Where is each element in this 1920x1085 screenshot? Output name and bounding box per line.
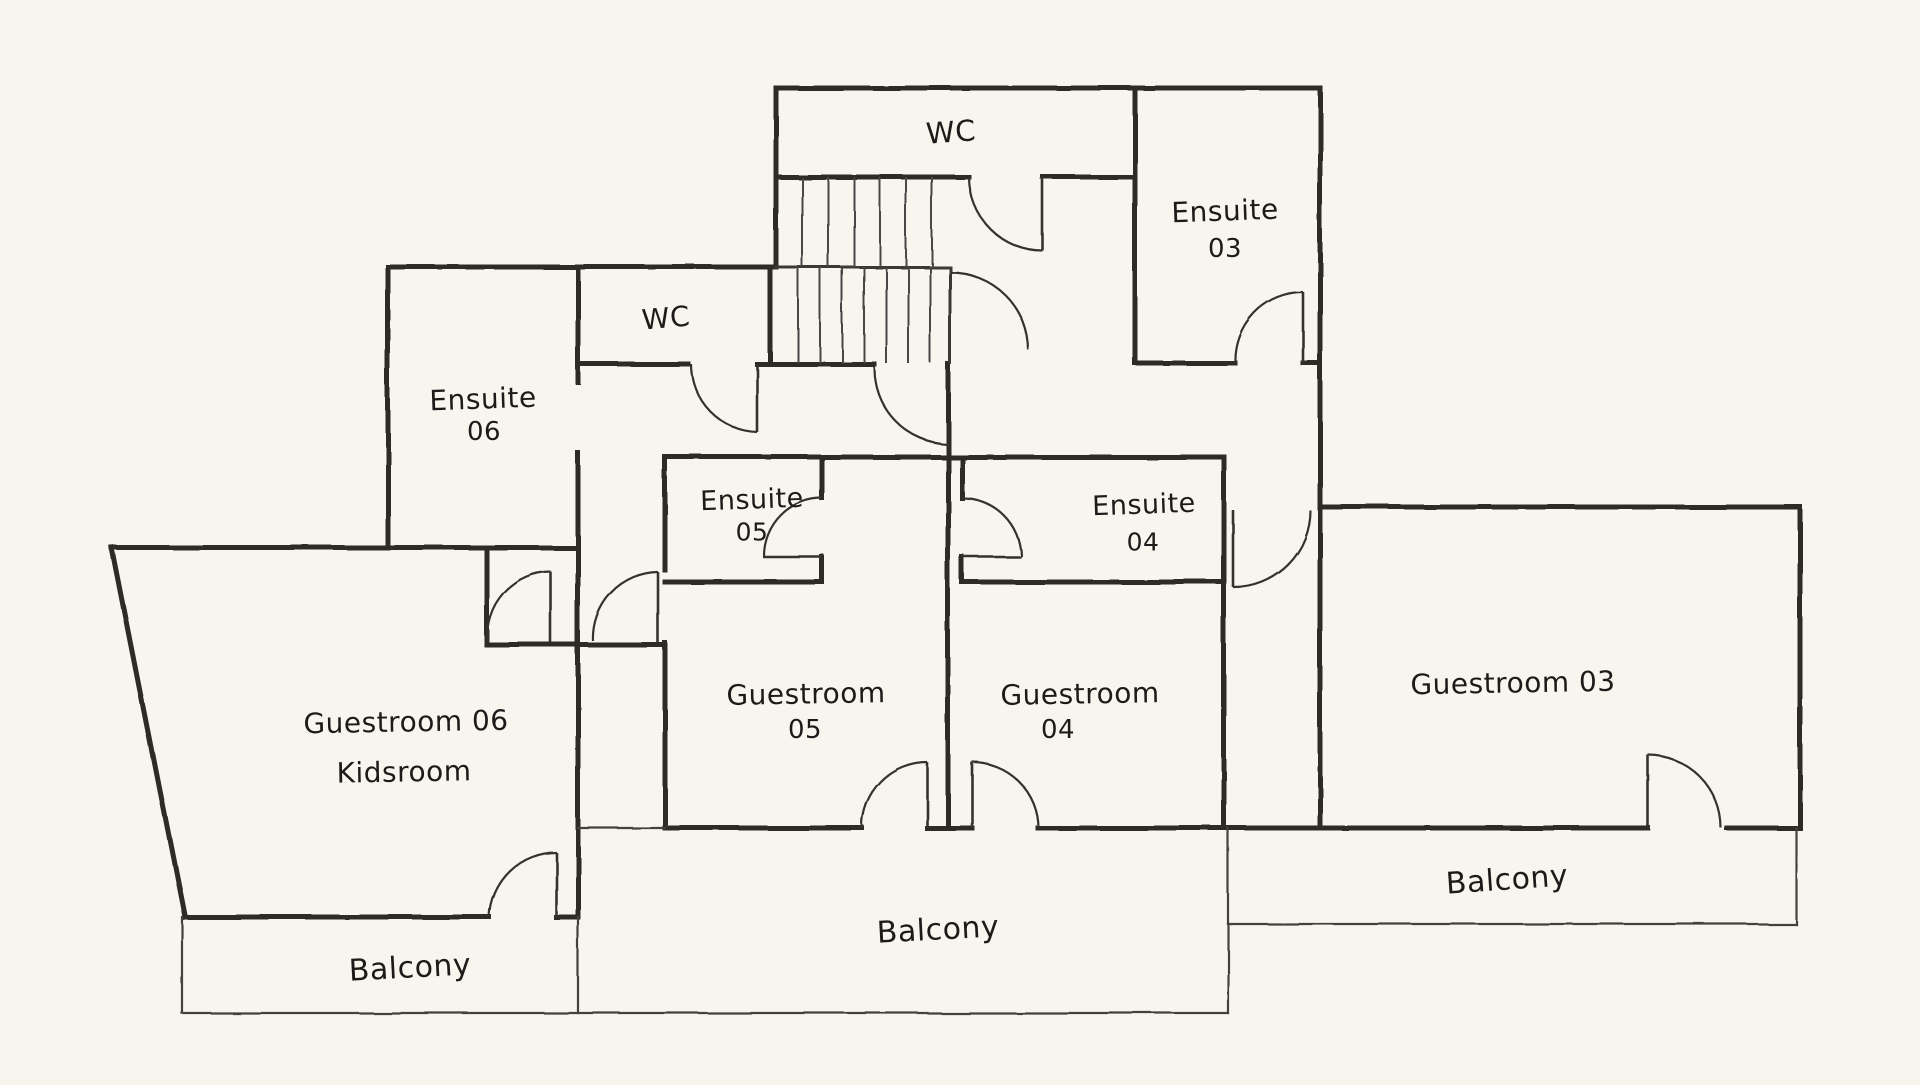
label-guestroom-06-line2: Kidsroom [336, 754, 471, 789]
label-ensuite-04-line2: 04 [1127, 528, 1160, 557]
label-ensuite-06-line1: Ensuite [429, 381, 537, 418]
door-arcs-layer [488, 177, 1721, 917]
door-swing-arc [593, 572, 658, 641]
label-balcony-center: Balcony [876, 909, 1000, 950]
door-swing-arc [874, 366, 948, 444]
door-swing-arc [489, 852, 556, 917]
stairs-layer [798, 177, 932, 363]
label-guestroom-04-line2: 04 [1041, 715, 1075, 745]
door-swing-arc [1233, 510, 1310, 587]
door-swing-arc [862, 762, 927, 828]
walls-layer [112, 88, 1800, 917]
door-swing-arc [972, 762, 1038, 828]
label-ensuite-05-line1: Ensuite [700, 483, 805, 518]
label-ensuite-04-line1: Ensuite [1092, 488, 1197, 523]
label-guestroom-06-line1: Guestroom 06 [303, 704, 509, 741]
door-swing-arc [1235, 292, 1303, 363]
label-ensuite-03-line2: 03 [1208, 234, 1242, 264]
label-guestroom-05-line2: 05 [788, 715, 822, 745]
door-swing-arc [691, 364, 757, 432]
door-swing-arc [950, 272, 1028, 350]
door-swing-arc [1648, 755, 1721, 828]
floor-plan: WCEnsuite03WCEnsuite06Ensuite05Ensuite04… [0, 0, 1920, 1085]
door-swing-arc [488, 572, 551, 642]
wall [112, 548, 185, 917]
door-swing-arc [962, 498, 1021, 556]
label-ensuite-05-line2: 05 [736, 518, 769, 547]
label-wc-top: WC [925, 113, 977, 150]
label-ensuite-06-line2: 06 [467, 417, 501, 447]
label-guestroom-03: Guestroom 03 [1410, 665, 1616, 702]
door-swing-arc [969, 177, 1043, 251]
door-leaves-layer [551, 177, 1648, 917]
label-balcony-left: Balcony [348, 947, 472, 988]
label-wc-small: WC [641, 299, 692, 336]
label-guestroom-04-line1: Guestroom [1000, 676, 1160, 712]
label-guestroom-05-line1: Guestroom [726, 676, 886, 712]
label-ensuite-03-line1: Ensuite [1171, 193, 1279, 230]
